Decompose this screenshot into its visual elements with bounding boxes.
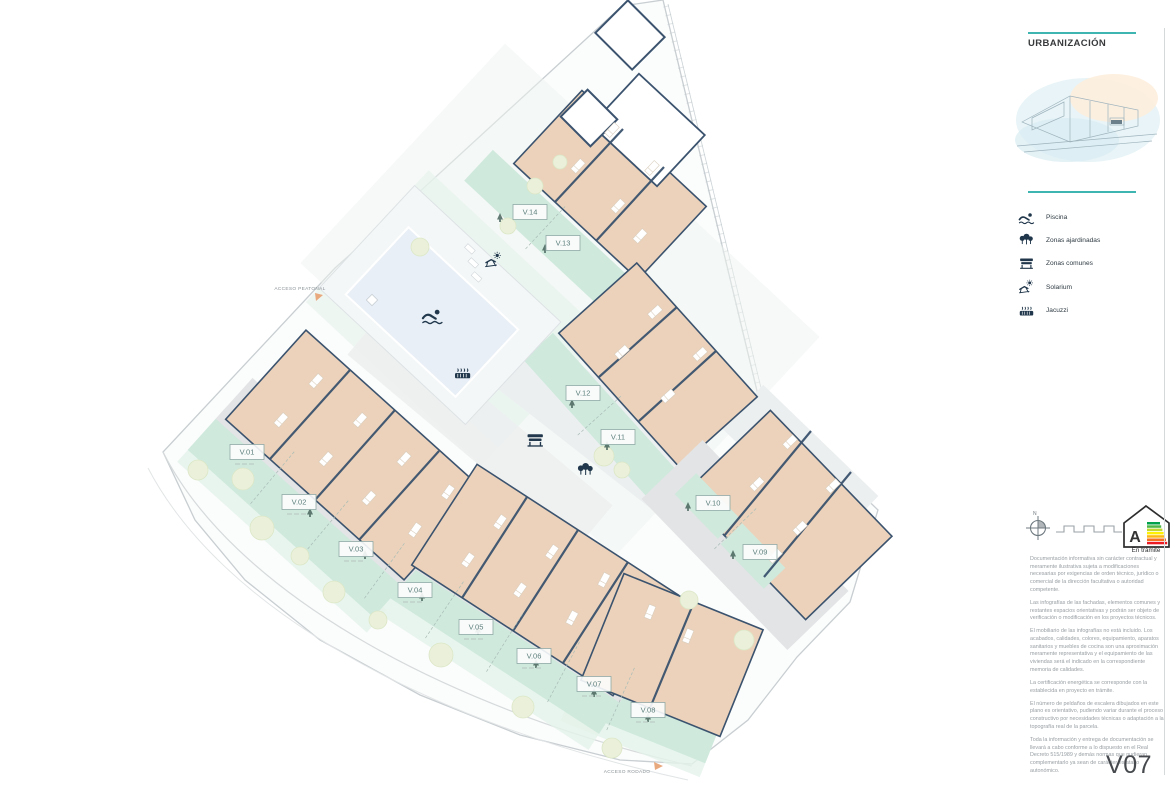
site-plan: V.01 V.02 V.03 V.04 V.05 V.06 V.07 V.08 … [0,0,1010,785]
svg-text:V.04: V.04 [408,586,423,595]
svg-text:V.06: V.06 [527,652,542,661]
legend-item-zonas-ajardinadas: Zonas ajardinadas [1018,229,1168,252]
teal-rule-legend [1028,191,1136,193]
legend-item-jacuzzi: Jacuzzi [1018,299,1168,322]
bench-icon [1018,255,1035,272]
svg-text:V.02: V.02 [292,498,307,507]
solarium-icon [1018,279,1035,296]
disclaimer-paragraph: Las infografías de las fachadas, element… [1030,600,1164,623]
trees-icon [1018,232,1035,249]
legend: Piscina Zonas ajardinadas Zonas comunes … [1018,206,1168,322]
swimmer-icon [1018,209,1035,226]
unit-label-v14[interactable]: V.14 [513,205,547,220]
legend-item-zonas-comunes: Zonas comunes [1018,252,1168,275]
panel-divider [1164,28,1165,775]
access-road-label: ACCESO RODADO [604,769,651,775]
legend-item-piscina: Piscina [1018,206,1168,229]
disclaimer-paragraph: El número de peldaños de escalera dibuja… [1030,701,1164,732]
teal-rule-top [1028,32,1136,34]
unit-label-v09[interactable]: V.09 [743,545,777,560]
road-arrow-icon [654,762,663,770]
plan-sheet: V.01 V.02 V.03 V.04 V.05 V.06 V.07 V.08 … [0,0,1170,785]
panel-title: URBANIZACIÓN [1028,38,1106,49]
disclaimer-paragraph: La certificación energética se correspon… [1030,680,1164,695]
svg-text:V.05: V.05 [469,623,484,632]
sheet-code: V07 [1040,751,1152,780]
svg-text:N: N [1033,511,1037,517]
svg-text:V.13: V.13 [556,239,571,248]
svg-text:V.11: V.11 [611,433,625,442]
disclaimer-paragraph: Documentación informativa sin carácter c… [1030,556,1164,594]
access-pedestrian-label: ACCESO PEATONAL [274,286,325,292]
unit-label-v10[interactable]: V.10 [696,496,730,511]
svg-text:V.10: V.10 [706,499,721,508]
unit-label-v13[interactable]: V.13 [546,236,580,251]
scale-bar [1056,526,1122,532]
jacuzzi-icon [1018,302,1035,319]
svg-text:V.14: V.14 [523,208,538,217]
disclaimer-paragraph: El mobiliario de las infografías no está… [1030,628,1164,674]
svg-text:V.07: V.07 [587,680,602,689]
energy-certificate-icon: A [1124,506,1169,547]
svg-text:A: A [1129,529,1141,546]
svg-text:V.03: V.03 [349,545,364,554]
legend-item-solarium: Solarium [1018,276,1168,299]
unit-label-v11[interactable]: V.11 [601,430,635,445]
svg-text:V.09: V.09 [753,548,768,557]
svg-text:V.01: V.01 [240,448,255,457]
energy-status: En trámite [1118,547,1170,554]
disclaimer: Documentación informativa sin carácter c… [1030,556,1164,781]
north-compass-icon: N [1026,511,1050,540]
urbanization-sketch [1012,60,1164,172]
svg-text:V.08: V.08 [641,706,656,715]
unit-label-v12[interactable]: V.12 [566,386,600,401]
svg-text:V.12: V.12 [576,389,591,398]
